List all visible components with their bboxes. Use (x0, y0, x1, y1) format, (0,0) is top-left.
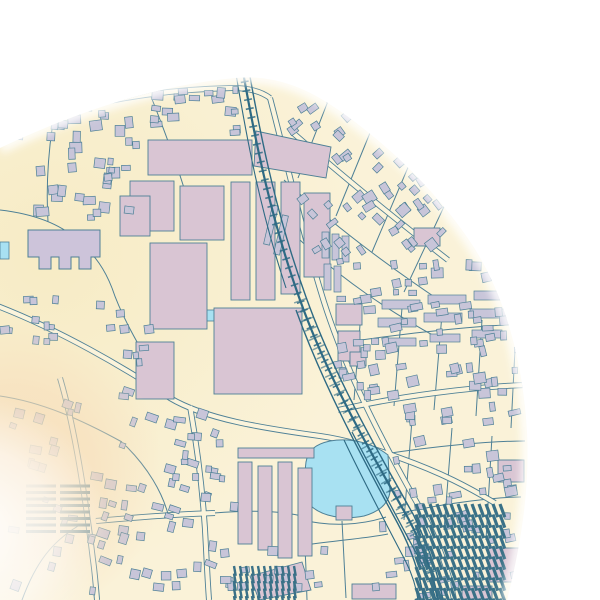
white-fade-overlay (0, 0, 600, 600)
map-viewport[interactable] (0, 0, 600, 600)
map-canvas[interactable] (0, 0, 600, 600)
fade-overlays (0, 0, 600, 600)
